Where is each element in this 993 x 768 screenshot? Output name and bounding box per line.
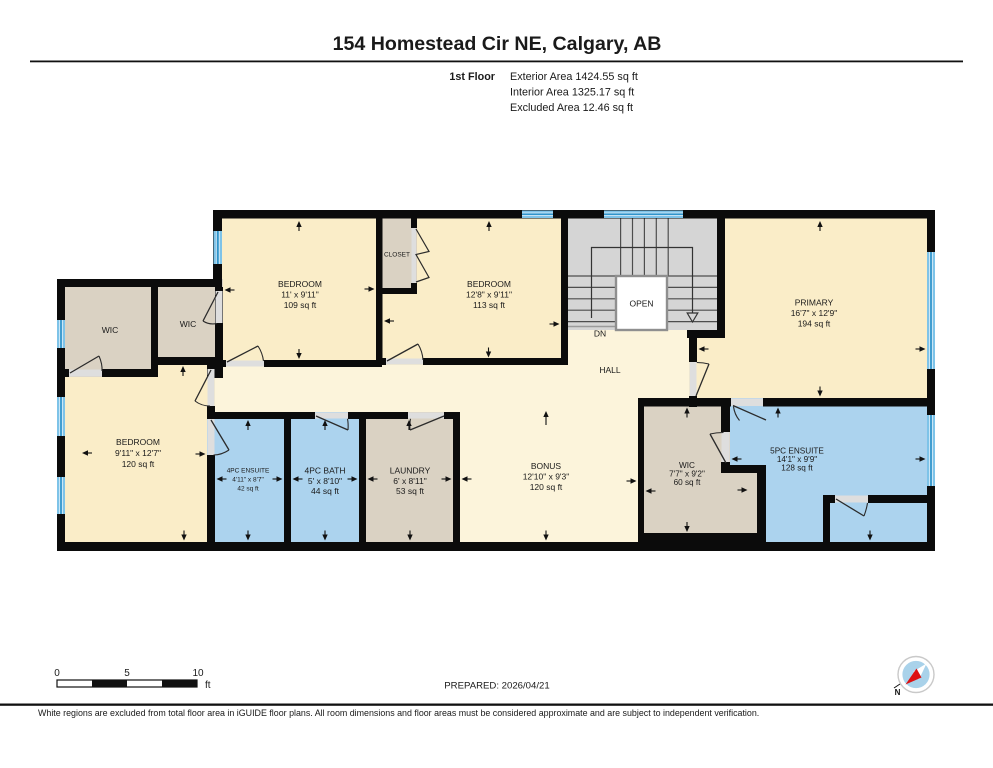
svg-text:109 sq ft: 109 sq ft — [284, 300, 317, 310]
svg-text:60 sq ft: 60 sq ft — [674, 478, 702, 487]
svg-text:0: 0 — [54, 668, 60, 679]
svg-text:120 sq ft: 120 sq ft — [530, 482, 563, 492]
svg-text:CLOSET: CLOSET — [384, 251, 410, 258]
svg-text:128 sq ft: 128 sq ft — [781, 463, 813, 472]
svg-text:113 sq ft: 113 sq ft — [473, 300, 506, 310]
svg-text:BONUS: BONUS — [531, 461, 562, 471]
svg-text:10: 10 — [192, 668, 204, 679]
svg-text:9'11" x 12'7": 9'11" x 12'7" — [115, 448, 161, 458]
svg-text:WIC: WIC — [102, 325, 119, 335]
svg-text:1st Floor: 1st Floor — [449, 71, 495, 83]
svg-text:44 sq ft: 44 sq ft — [311, 486, 340, 496]
svg-text:16'7" x 12'9": 16'7" x 12'9" — [791, 308, 838, 318]
svg-text:120 sq ft: 120 sq ft — [122, 459, 155, 469]
svg-text:White regions are excluded fro: White regions are excluded from total fl… — [38, 708, 759, 718]
svg-text:6' x 8'11": 6' x 8'11" — [393, 476, 427, 486]
svg-text:4'11" x 8'7": 4'11" x 8'7" — [232, 476, 264, 483]
svg-text:4PC ENSUITE: 4PC ENSUITE — [227, 467, 270, 474]
svg-text:12'10" x 9'3": 12'10" x 9'3" — [523, 472, 570, 482]
svg-text:4PC BATH: 4PC BATH — [305, 466, 346, 476]
svg-text:Interior Area 1325.17 sq ft: Interior Area 1325.17 sq ft — [510, 87, 634, 99]
svg-text:ft: ft — [205, 680, 211, 691]
svg-text:BEDROOM: BEDROOM — [278, 279, 322, 289]
svg-text:PREPARED: 2026/04/21: PREPARED: 2026/04/21 — [444, 681, 549, 692]
svg-text:53 sq ft: 53 sq ft — [396, 486, 425, 496]
svg-text:Excluded Area 12.46 sq ft: Excluded Area 12.46 sq ft — [510, 102, 633, 114]
svg-text:PRIMARY: PRIMARY — [795, 298, 834, 308]
svg-text:BEDROOM: BEDROOM — [467, 279, 511, 289]
svg-text:154 Homestead Cir NE, Calgary,: 154 Homestead Cir NE, Calgary, AB — [333, 33, 662, 55]
svg-text:HALL: HALL — [599, 365, 621, 375]
svg-text:11' x 9'11": 11' x 9'11" — [281, 290, 319, 300]
svg-text:LAUNDRY: LAUNDRY — [390, 466, 431, 476]
svg-text:BEDROOM: BEDROOM — [116, 437, 160, 447]
svg-text:194 sq ft: 194 sq ft — [798, 319, 831, 329]
svg-text:12'8" x 9'11": 12'8" x 9'11" — [466, 290, 512, 300]
svg-text:N: N — [895, 688, 901, 697]
svg-text:42 sq ft: 42 sq ft — [237, 485, 259, 492]
svg-text:5' x 8'10": 5' x 8'10" — [308, 476, 342, 486]
svg-text:Exterior Area 1424.55 sq ft: Exterior Area 1424.55 sq ft — [510, 71, 638, 83]
svg-text:WIC: WIC — [180, 319, 197, 329]
svg-text:OPEN: OPEN — [629, 299, 653, 309]
svg-text:5: 5 — [124, 668, 130, 679]
svg-text:DN: DN — [594, 329, 606, 339]
